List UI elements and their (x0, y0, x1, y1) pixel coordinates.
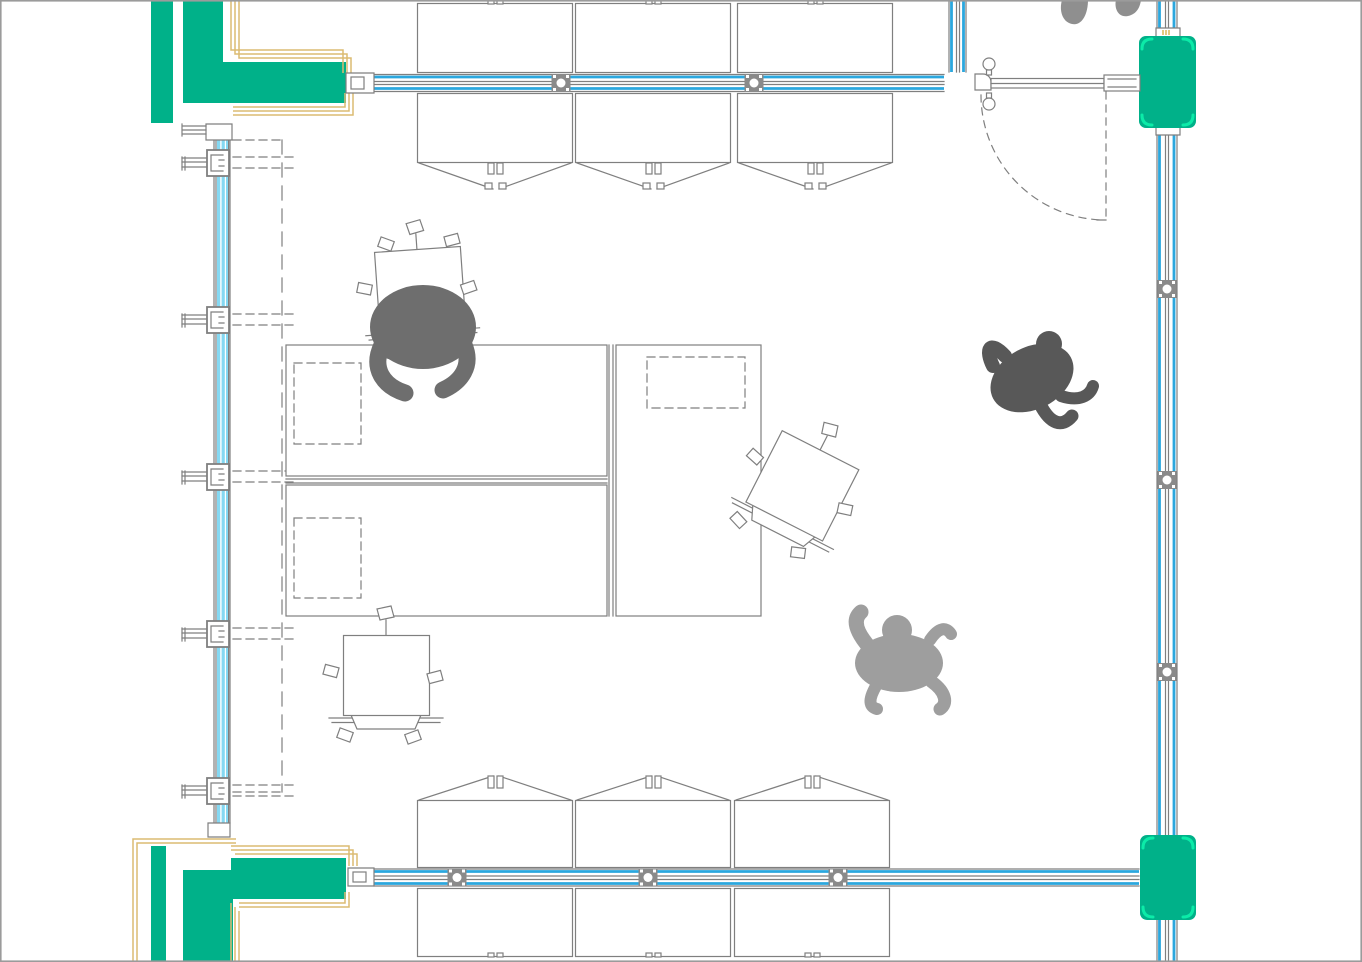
wall-desk[interactable] (576, 0, 731, 73)
work-table-1[interactable] (286, 345, 607, 476)
wall-desk[interactable] (418, 889, 573, 958)
wall-desk[interactable] (576, 889, 731, 958)
wall-mullion (1158, 663, 1177, 681)
wall-desk[interactable] (738, 0, 893, 73)
green-column[interactable] (1140, 835, 1196, 920)
wall-mullion (745, 74, 764, 92)
work-table-2[interactable] (286, 485, 607, 616)
work-table-3[interactable] (616, 345, 761, 616)
wall-desk[interactable] (418, 0, 573, 73)
wall-mullion (829, 869, 848, 887)
wall-mullion (1158, 471, 1177, 489)
wall-mullion (639, 869, 658, 887)
floor-plan-canvas (0, 0, 1362, 962)
wall-mullion (448, 869, 467, 887)
wall-desk[interactable] (735, 889, 890, 958)
wall-mullion (552, 74, 571, 92)
green-column[interactable] (1139, 36, 1196, 128)
wall-mullion (1158, 280, 1177, 298)
